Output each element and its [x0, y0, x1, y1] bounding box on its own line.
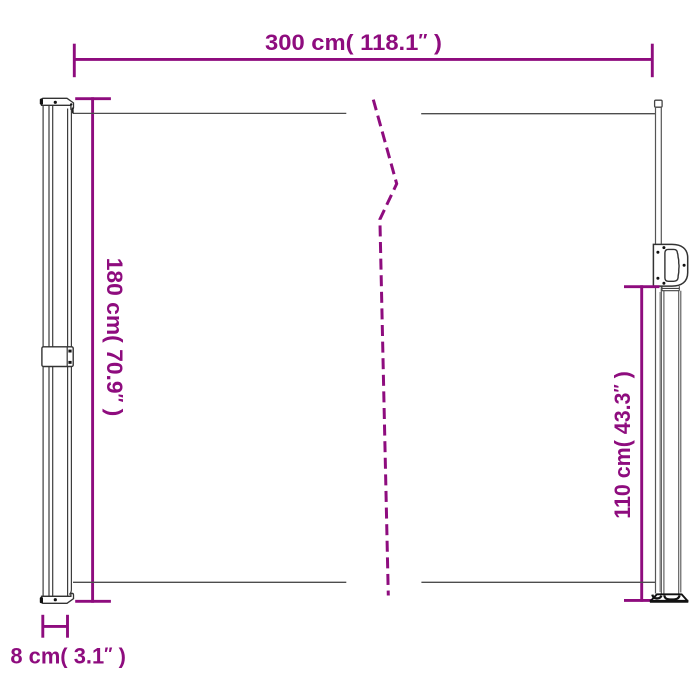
svg-text:180 cm( 70.9″ ): 180 cm( 70.9″ ) — [102, 258, 127, 417]
svg-text:110 cm( 43.3″ ): 110 cm( 43.3″ ) — [610, 371, 635, 519]
svg-text:300 cm( 118.1″ ): 300 cm( 118.1″ ) — [265, 30, 442, 55]
